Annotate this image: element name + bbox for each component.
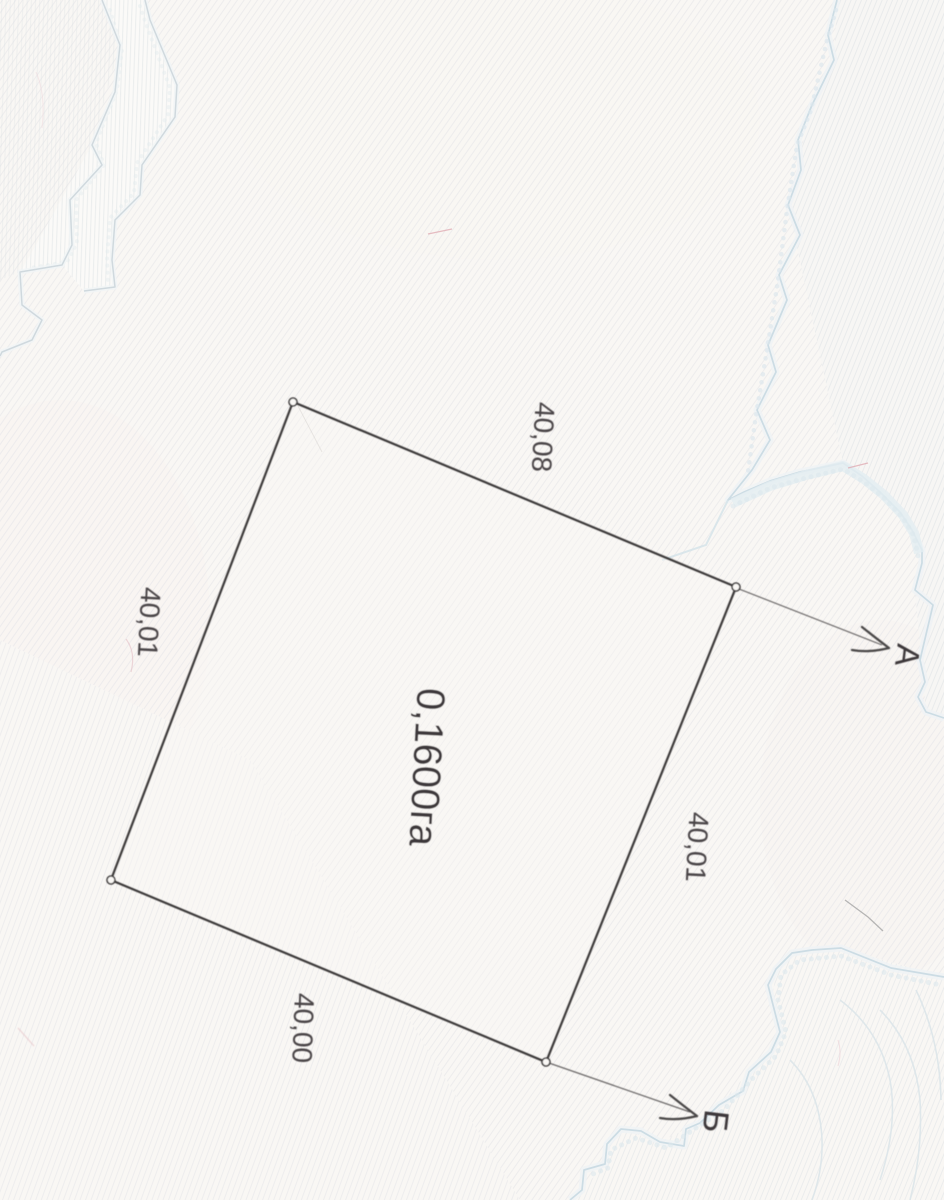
svg-text:40,01: 40,01 <box>680 811 715 883</box>
svg-text:А: А <box>888 642 927 668</box>
svg-text:0,1600га: 0,1600га <box>400 687 452 848</box>
svg-text:Б: Б <box>694 1107 736 1135</box>
svg-text:40,01: 40,01 <box>132 586 167 658</box>
svg-text:40,00: 40,00 <box>286 993 319 1064</box>
svg-text:40,08: 40,08 <box>526 401 561 473</box>
